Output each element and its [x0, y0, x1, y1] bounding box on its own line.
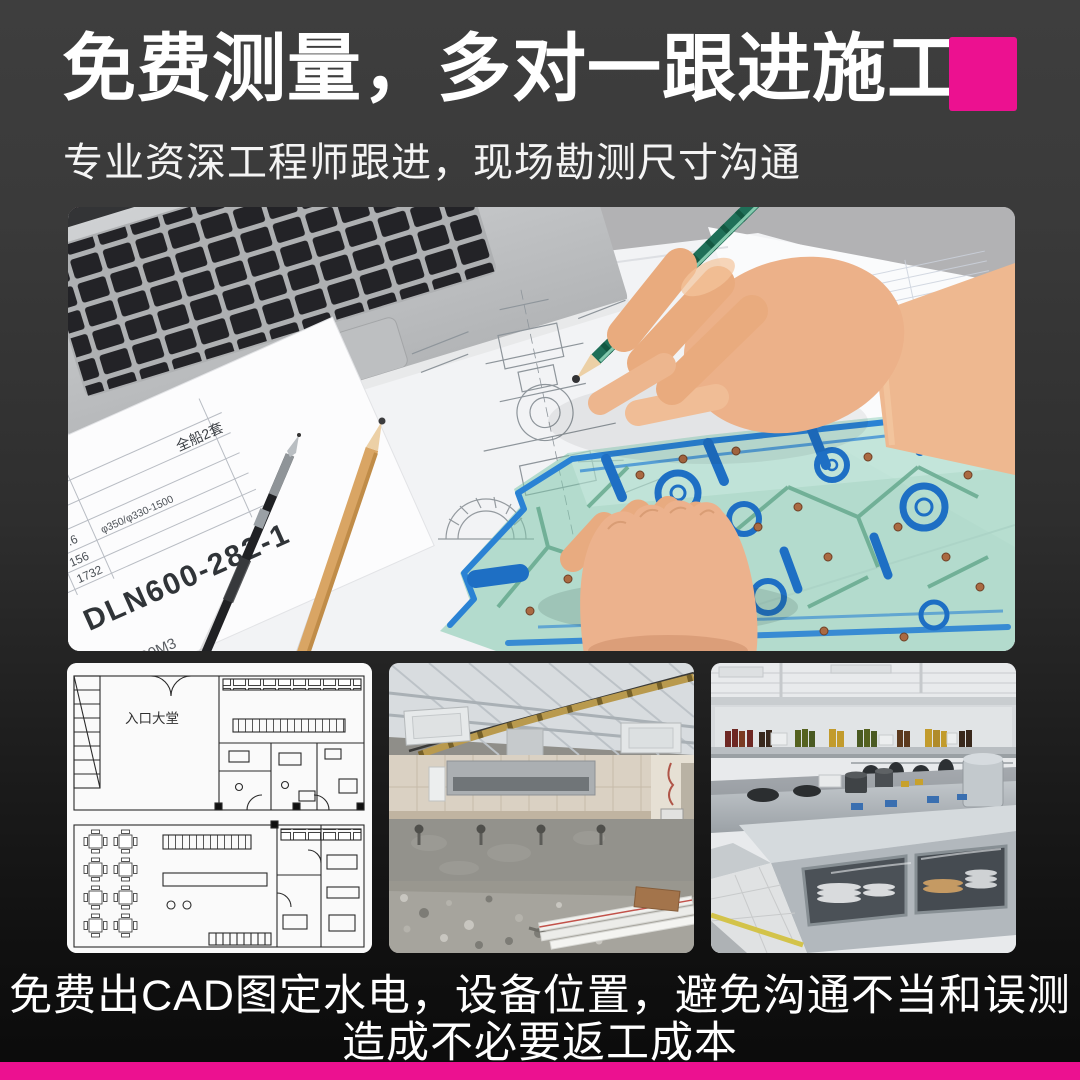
finished-kitchen-illustration: [711, 663, 1016, 953]
bottom-accent-bar: [0, 1062, 1080, 1080]
gallery-photo-cad-floor-plan: 入口大堂: [67, 663, 372, 953]
steel-hood-frame: [429, 761, 595, 801]
construction-site-illustration: [389, 663, 694, 953]
floor-plan-room-label: 入口大堂: [125, 711, 179, 726]
gallery-photo-construction-site: [389, 663, 694, 953]
measuring-scene-illustration: 570 570 2.4 9.6 φ350/φ330-1500 156 156 8…: [68, 207, 1015, 651]
gallery-photo-finished-kitchen: [711, 663, 1016, 953]
footer-caption-line2: 造成不必要返工成本: [0, 1008, 1080, 1070]
promo-banner: 免费测量，多对一跟进施工 专业资深工程师跟进，现场勘测尺寸沟通: [0, 0, 1080, 1080]
page-subtitle: 专业资深工程师跟进，现场勘测尺寸沟通: [63, 130, 963, 188]
page-title: 免费测量，多对一跟进施工: [62, 26, 942, 111]
floor-plan-illustration: 入口大堂: [67, 663, 372, 953]
main-photo-measuring: 570 570 2.4 9.6 φ350/φ330-1500 156 156 8…: [68, 207, 1015, 651]
accent-square: [949, 37, 1017, 111]
cardboard-debris: [634, 887, 680, 911]
